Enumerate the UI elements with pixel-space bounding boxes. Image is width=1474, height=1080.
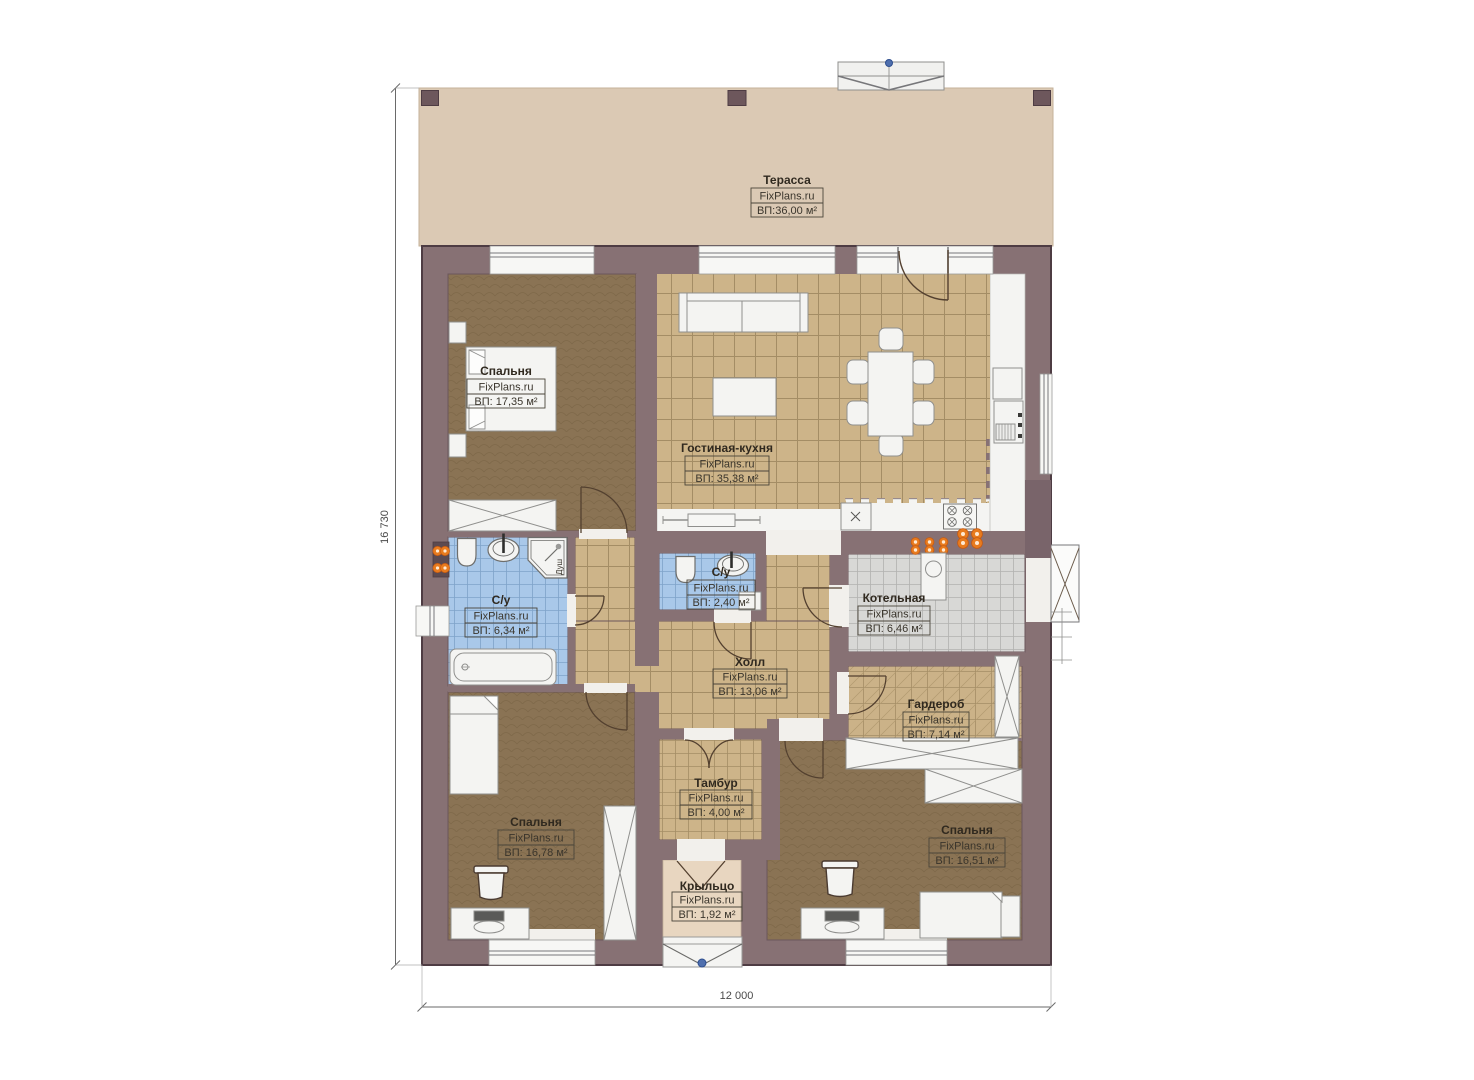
svg-text:Гостиная-кухня: Гостиная-кухня [681,441,773,455]
svg-text:FixPlans.ru: FixPlans.ru [478,382,533,394]
svg-text:Спальня: Спальня [510,815,562,829]
svg-text:ВП: 2,40 м²: ВП: 2,40 м² [692,597,749,609]
svg-text:С/у: С/у [492,593,511,607]
svg-text:12 000: 12 000 [720,990,754,1002]
svg-text:Тамбур: Тамбур [694,776,738,790]
svg-text:Терасса: Терасса [763,173,811,187]
svg-text:FixPlans.ru: FixPlans.ru [939,841,994,853]
svg-text:ВП: 4,00 м²: ВП: 4,00 м² [687,807,744,819]
svg-text:ВП: 7,14 м²: ВП: 7,14 м² [907,729,964,741]
svg-text:ВП:36,00 м²: ВП:36,00 м² [757,205,817,217]
svg-text:FixPlans.ru: FixPlans.ru [908,715,963,727]
svg-text:FixPlans.ru: FixPlans.ru [679,895,734,907]
svg-text:ВП: 16,78 м²: ВП: 16,78 м² [504,847,568,859]
svg-text:FixPlans.ru: FixPlans.ru [473,611,528,623]
svg-text:ВП: 6,34 м²: ВП: 6,34 м² [472,625,529,637]
svg-text:ВП: 13,06 м²: ВП: 13,06 м² [718,686,782,698]
svg-text:ВП: 35,38 м²: ВП: 35,38 м² [695,473,759,485]
svg-text:16 730: 16 730 [379,510,391,544]
svg-text:С/у: С/у [712,565,731,579]
svg-text:FixPlans.ru: FixPlans.ru [722,672,777,684]
svg-text:Спальня: Спальня [941,823,993,837]
svg-text:Крыльцо: Крыльцо [680,879,735,893]
svg-text:ВП: 1,92 м²: ВП: 1,92 м² [678,909,735,921]
svg-text:FixPlans.ru: FixPlans.ru [693,583,748,595]
svg-text:FixPlans.ru: FixPlans.ru [866,609,921,621]
svg-text:ВП: 16,51 м²: ВП: 16,51 м² [935,855,999,867]
svg-text:ВП: 6,46 м²: ВП: 6,46 м² [865,623,922,635]
svg-text:Душ: Душ [555,559,564,575]
svg-text:Гардероб: Гардероб [908,697,965,711]
svg-text:FixPlans.ru: FixPlans.ru [759,191,814,203]
svg-text:FixPlans.ru: FixPlans.ru [699,459,754,471]
svg-text:Спальня: Спальня [480,364,532,378]
svg-text:ВП: 17,35 м²: ВП: 17,35 м² [474,396,538,408]
svg-text:FixPlans.ru: FixPlans.ru [508,833,563,845]
svg-text:Холл: Холл [735,655,765,669]
svg-text:FixPlans.ru: FixPlans.ru [688,793,743,805]
svg-text:Котельная: Котельная [863,591,926,605]
